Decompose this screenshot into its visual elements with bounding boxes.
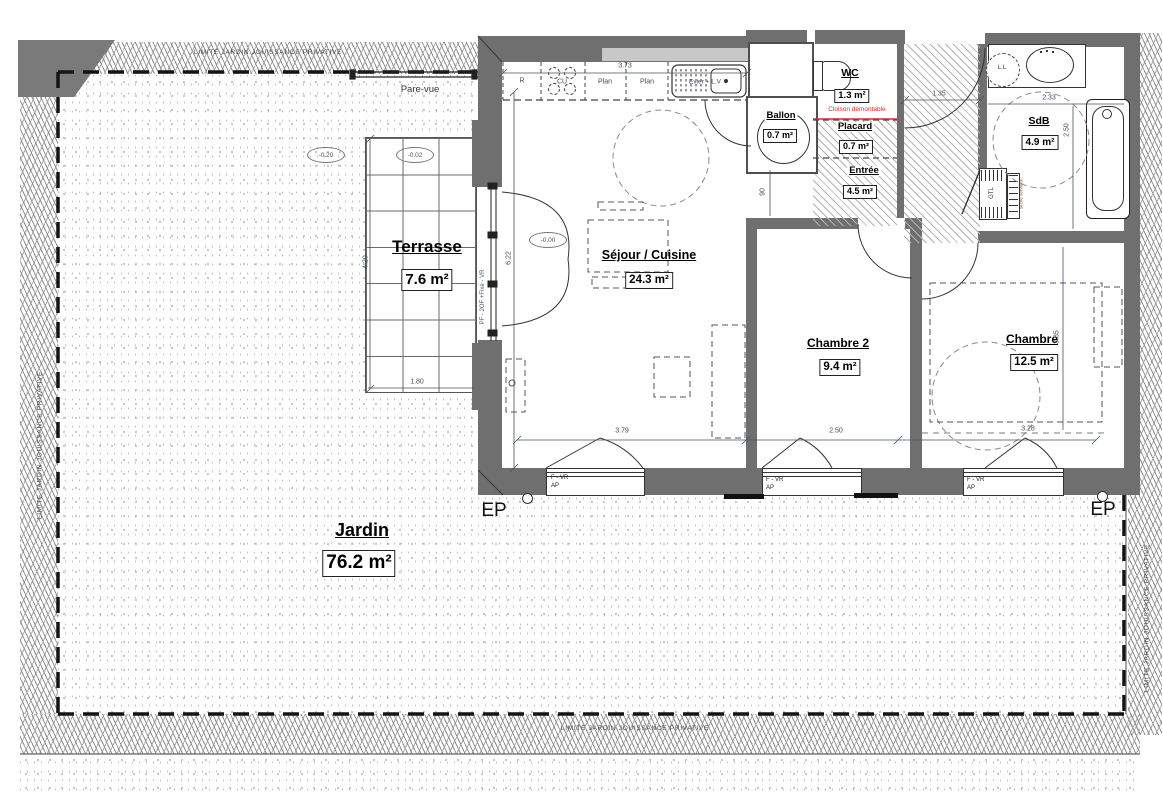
wall-left-stub-lower [472, 343, 502, 410]
room-label-chambre: Chambre [1006, 333, 1058, 346]
room-label-ballon: Ballon [764, 111, 797, 121]
room-label-sdb: SdB [1029, 116, 1050, 128]
room-label-terrasse: Terrasse [392, 238, 462, 257]
terrasse-area [365, 137, 477, 393]
tap-dot-icon [1046, 50, 1048, 52]
area-badge-terrasse: 7.6 m² [401, 269, 452, 291]
window-2-label: F - VR AP [766, 476, 783, 492]
room-label-sejour: Séjour / Cuisine [602, 249, 696, 263]
limite-hatch-bottom [20, 714, 1140, 754]
limite-label-bottom: LIMITE JARDIN JOUISSANCE PRIVATIVE [561, 725, 709, 732]
bay-window-label: PF - 2OF +Fixe - VR [480, 270, 486, 325]
room-label-entree: Entrée [847, 166, 881, 176]
kitchen-sink-label: Evier + L.V [689, 79, 721, 86]
ep-drain-icon-left [522, 493, 533, 504]
wall-sdb-bottom [978, 231, 1124, 243]
window-label-line1: F - VR [766, 476, 783, 484]
wall-corridor-left [897, 44, 904, 218]
threshold-bar [854, 493, 898, 498]
window-label-line2: AP [967, 484, 984, 492]
window-1-label: F - VR AP [551, 474, 568, 490]
room-label-wc: WC [841, 68, 859, 80]
room-label-chambre2: Chambre 2 [807, 337, 869, 350]
washing-machine-label: L.L [998, 65, 1006, 71]
dim-sdb-height: 2.50 [1064, 123, 1071, 137]
gtl-stripes-bottom [981, 207, 1002, 218]
area-badge-placard: 0.7 m² [839, 140, 873, 154]
area-badge-wc: 1.3 m² [834, 89, 869, 103]
dim-sejour-width: 3.79 [615, 428, 629, 435]
towel-rail-label: sèche serviette [1019, 179, 1024, 209]
window-glazing [547, 472, 644, 473]
towel-rail-rungs [1009, 175, 1018, 217]
corridor-hatch-zone [904, 44, 980, 243]
area-badge-ballon: 0.7 m² [763, 129, 797, 143]
kitchen-counter2-label: Plan [640, 79, 654, 86]
window-label-line2: AP [766, 484, 783, 492]
window-3-label: F - VR AP [967, 476, 984, 492]
area-badge-sejour: 24.3 m² [625, 272, 673, 289]
dim-sejour-height: 6.22 [506, 251, 513, 265]
limite-hatch-top [58, 42, 478, 74]
limite-label-right: LIMITE JARDIN JOUISSANCE PRIVATIVE [1144, 544, 1151, 692]
wall-sejour-chambre2 [746, 218, 757, 470]
window-label-line2: AP [551, 482, 568, 490]
wall-top-wc [815, 30, 905, 44]
limite-label-left: LIMITE JARDIN JOUISSANCE PRIVATIVE [37, 371, 44, 519]
dim-entree-width: 1.35 [932, 91, 946, 98]
area-badge-entree: 4.5 m² [843, 185, 877, 199]
pare-vue-label: Pare-vue [401, 84, 440, 95]
dim-door-width: 90 [760, 188, 767, 196]
upper-closet [748, 42, 814, 100]
kitchen-hob-label: CU [557, 79, 567, 86]
area-badge-sdb: 4.9 m² [1022, 135, 1059, 150]
wall-left-stub-upper [472, 120, 502, 187]
jardin-texture-below [20, 753, 1140, 795]
window-label-line1: F - VR [967, 476, 984, 484]
terrasse-tile-grid [366, 138, 476, 392]
limite-label-top: LIMITE JARDIN JOUISSANCE PRIVATIVE [194, 49, 342, 56]
dim-terrasse-width: 1.80 [410, 379, 424, 386]
window-glazing [763, 472, 861, 473]
area-badge-jardin: 76.2 m² [322, 550, 395, 577]
kitchen-counter1-label: Plan [598, 79, 612, 86]
window-glazing [964, 472, 1063, 473]
cloison-demontable-label: Cloison démontable [828, 106, 885, 113]
dim-sdb-width: 2.33 [1042, 95, 1056, 102]
level-jardin: -0.20 [307, 147, 345, 163]
gtl-label: GTL [989, 187, 995, 199]
wall-top-light-band [602, 48, 752, 61]
kitchen-fridge-label: R [519, 78, 524, 85]
window-label-line1: F - VR [551, 474, 568, 482]
bathtub-drain-icon [1102, 109, 1112, 119]
dim-terrasse-height: 4.20 [363, 255, 370, 269]
dim-chambre-width: 3.28 [1021, 426, 1035, 433]
tap-dot-icon [1040, 51, 1042, 53]
room-label-placard: Placard [836, 122, 874, 132]
ep-label-right: EP [1090, 499, 1115, 521]
bathtub-inner [1092, 106, 1124, 211]
dim-chambre2-width: 2.50 [829, 428, 843, 435]
tap-dot-icon [1052, 51, 1054, 53]
floor-plan: L.L GTL sèche serviette F - VR AP F - VR… [0, 0, 1163, 800]
washbasin-icon [1026, 47, 1074, 83]
dim-kitchen-width: 3.73 [618, 63, 632, 70]
level-terrasse: -0.02 [396, 147, 434, 163]
area-badge-chambre: 12.5 m² [1010, 354, 1058, 371]
threshold-bar [724, 494, 764, 499]
gtl-stripes-top [981, 170, 1002, 181]
ep-label-left: EP [481, 500, 506, 522]
area-badge-chambre2: 9.4 m² [819, 359, 860, 376]
dim-chambre-height: 3.85 [1054, 330, 1061, 344]
level-interior: -0.00 [529, 232, 567, 248]
wall-chambre2-chambre [910, 218, 922, 470]
room-label-jardin: Jardin [335, 521, 389, 541]
